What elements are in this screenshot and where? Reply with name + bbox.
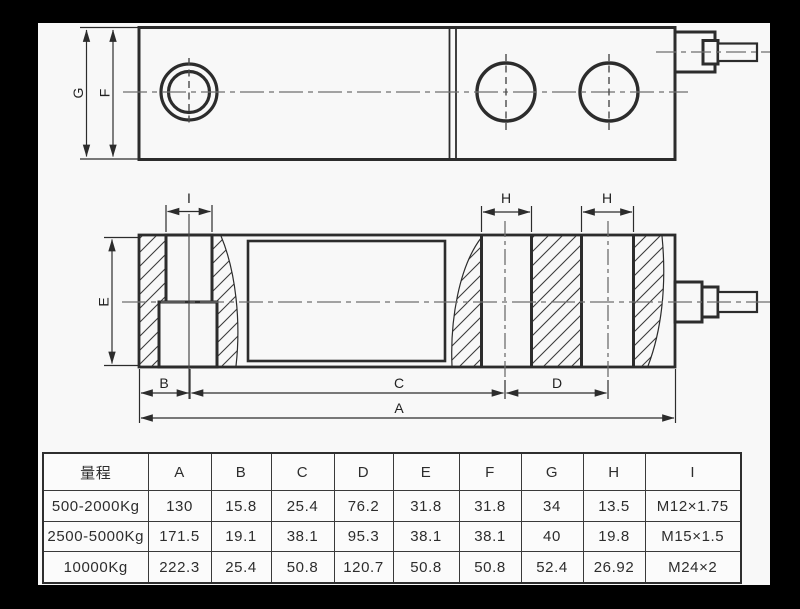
centerlines bbox=[123, 52, 770, 92]
table-row: 10000Kg 222.3 25.4 50.8 120.7 50.8 50.8 … bbox=[43, 552, 741, 583]
table-cell: 34 bbox=[521, 491, 583, 521]
table-cell: 50.8 bbox=[459, 552, 521, 583]
header-g: G bbox=[521, 453, 583, 491]
table-cell: 38.1 bbox=[271, 521, 334, 551]
top-view: G F bbox=[70, 28, 770, 160]
table-cell: 50.8 bbox=[271, 552, 334, 583]
table-cell: 50.8 bbox=[393, 552, 459, 583]
dim-label-h2: H bbox=[602, 190, 612, 206]
table-cell: 2500-5000Kg bbox=[43, 521, 148, 551]
table-cell: 25.4 bbox=[271, 491, 334, 521]
dimensions-table: 量程 A B C D E F G H I 500-2000Kg 130 15.8… bbox=[42, 452, 742, 584]
table-cell: M12×1.75 bbox=[645, 491, 741, 521]
threaded-bore-lower bbox=[159, 302, 217, 367]
header-h: H bbox=[583, 453, 645, 491]
table-cell: 500-2000Kg bbox=[43, 491, 148, 521]
dim-label-g: G bbox=[70, 88, 86, 99]
bottom-dims bbox=[140, 369, 676, 423]
table-header-row: 量程 A B C D E F G H I bbox=[43, 453, 741, 491]
table-cell: 40 bbox=[521, 521, 583, 551]
table-cell: 10000Kg bbox=[43, 552, 148, 583]
dim-label-c: C bbox=[394, 375, 404, 391]
header-e: E bbox=[393, 453, 459, 491]
table-cell: 52.4 bbox=[521, 552, 583, 583]
hatch-regions bbox=[140, 236, 664, 366]
table-cell: 130 bbox=[148, 491, 211, 521]
header-d: D bbox=[334, 453, 393, 491]
table-cell: 31.8 bbox=[459, 491, 521, 521]
header-range: 量程 bbox=[43, 453, 148, 491]
table-row: 500-2000Kg 130 15.8 25.4 76.2 31.8 31.8 … bbox=[43, 491, 741, 521]
header-a: A bbox=[148, 453, 211, 491]
table-cell: 25.4 bbox=[211, 552, 271, 583]
table-cell: 38.1 bbox=[459, 521, 521, 551]
table-cell: 26.92 bbox=[583, 552, 645, 583]
inner-cavity-outline bbox=[248, 241, 445, 361]
section-view: I H H E bbox=[96, 190, 771, 423]
header-i: I bbox=[645, 453, 741, 491]
dim-h bbox=[482, 206, 634, 232]
header-c: C bbox=[271, 453, 334, 491]
header-b: B bbox=[211, 453, 271, 491]
table-cell: 38.1 bbox=[393, 521, 459, 551]
table-cell: M24×2 bbox=[645, 552, 741, 583]
table-cell: M15×1.5 bbox=[645, 521, 741, 551]
table-cell: 15.8 bbox=[211, 491, 271, 521]
table-cell: 120.7 bbox=[334, 552, 393, 583]
table-cell: 76.2 bbox=[334, 491, 393, 521]
table-cell: 19.8 bbox=[583, 521, 645, 551]
table-cell: 171.5 bbox=[148, 521, 211, 551]
screenshot-canvas: G F bbox=[0, 0, 800, 609]
dim-label-a: A bbox=[394, 400, 404, 416]
body-outline bbox=[139, 28, 675, 160]
dim-label-f: F bbox=[97, 89, 113, 98]
table-row: 2500-5000Kg 171.5 19.1 38.1 95.3 38.1 38… bbox=[43, 521, 741, 551]
dim-label-i: I bbox=[187, 190, 191, 206]
break-curves bbox=[221, 236, 664, 366]
dim-label-d: D bbox=[552, 375, 562, 391]
table-cell: 13.5 bbox=[583, 491, 645, 521]
header-f: F bbox=[459, 453, 521, 491]
table-cell: 31.8 bbox=[393, 491, 459, 521]
dim-label-h1: H bbox=[501, 190, 511, 206]
table-cell: 95.3 bbox=[334, 521, 393, 551]
dim-label-e: E bbox=[96, 297, 112, 306]
table-cell: 222.3 bbox=[148, 552, 211, 583]
table-cell: 19.1 bbox=[211, 521, 271, 551]
dim-label-b: B bbox=[159, 375, 168, 391]
